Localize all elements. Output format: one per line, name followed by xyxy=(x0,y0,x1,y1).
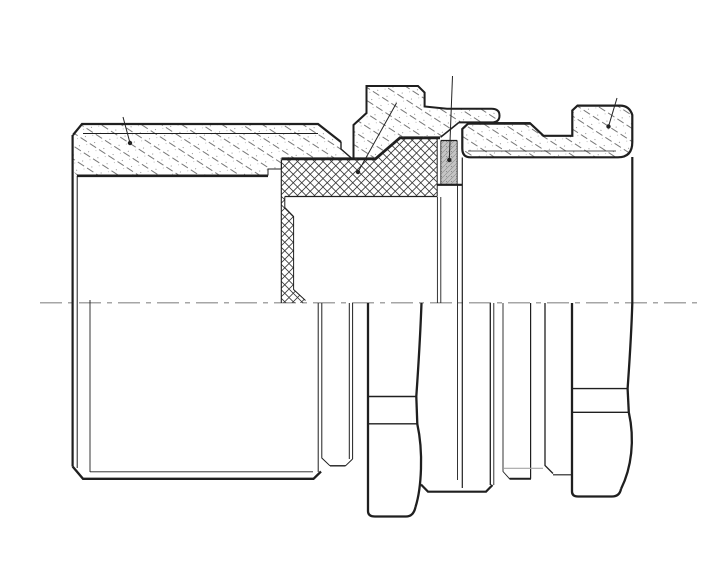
leader-dot-seal xyxy=(447,158,451,162)
leader-dot-ferrule xyxy=(128,141,132,145)
leader-dot-hose xyxy=(356,170,360,174)
technical-drawing xyxy=(0,0,720,561)
drawing-background xyxy=(0,0,720,561)
drawing-canvas xyxy=(0,0,720,561)
leader-dot-nut xyxy=(606,124,610,128)
